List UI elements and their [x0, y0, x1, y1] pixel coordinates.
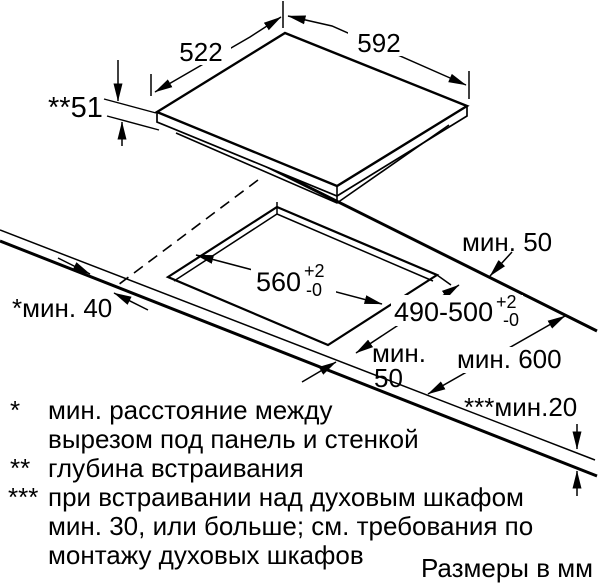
- units-note: Размеры в мм: [421, 553, 593, 583]
- footnote-2-symbol: **: [10, 453, 30, 483]
- dimension-appliance: 522 592: [151, 1, 469, 99]
- footnote-1-line1: мин. расстояние между: [48, 395, 332, 425]
- dimension-worktop-thickness: ***мин.20: [464, 392, 577, 496]
- dimension-cutout-width: 560 +2 -0: [196, 255, 382, 304]
- dimension-installation-depth: **51: [48, 60, 159, 146]
- diagram-svg: 522 592 **51 560 +2 -0 490-500 +2 -0 мин…: [0, 0, 600, 584]
- worktop-thickness-label: ***мин.20: [464, 392, 577, 422]
- rear-clearance-label: мин. 50: [462, 227, 552, 257]
- footnote-1-symbol: *: [10, 395, 20, 425]
- footnote-3-symbol: ***: [8, 482, 38, 512]
- footnote-1-line2: вырезом под панель и стенкой: [48, 424, 419, 454]
- cutout-width-tolerance-plus: +2: [304, 261, 325, 281]
- footnote-3-line2: мин. 30, или больше; см. требования по: [48, 511, 533, 541]
- cutout-depth-tolerance-plus: +2: [496, 292, 517, 312]
- worktop-depth-label: мин. 600: [457, 344, 562, 374]
- cutout-width-tolerance-minus: -0: [306, 280, 322, 300]
- cutout-depth-tolerance-minus: -0: [503, 310, 519, 330]
- appliance-width-label: 592: [357, 28, 400, 58]
- install-depth-upper-extension: [104, 99, 156, 113]
- install-depth-lower-extension: [107, 116, 159, 130]
- installation-diagram: 522 592 **51 560 +2 -0 490-500 +2 -0 мин…: [0, 0, 600, 584]
- cooktop-body-silhouette: [157, 106, 467, 196]
- clearance-rear: мин. 50: [462, 227, 552, 276]
- front-clearance-label-line2: 50: [374, 363, 403, 393]
- footnote-3-line1: при встраивании над духовым шкафом: [48, 482, 524, 512]
- side-clearance-label: *мин. 40: [12, 293, 112, 323]
- cutout-width-label: 560: [256, 267, 301, 297]
- footnote-3-line3: монтажу духовых шкафов: [48, 540, 364, 570]
- footnote-2-line1: глубина встраивания: [48, 453, 304, 483]
- appliance-depth-label: 522: [179, 37, 222, 67]
- cutout-right-extension-tick: [437, 275, 451, 285]
- side-clearance-arrow-right: [114, 293, 148, 310]
- installation-depth-label: **51: [48, 92, 103, 124]
- dimension-worktop-depth: мин. 600: [428, 316, 574, 394]
- cutout-depth-label: 490-500: [394, 297, 493, 327]
